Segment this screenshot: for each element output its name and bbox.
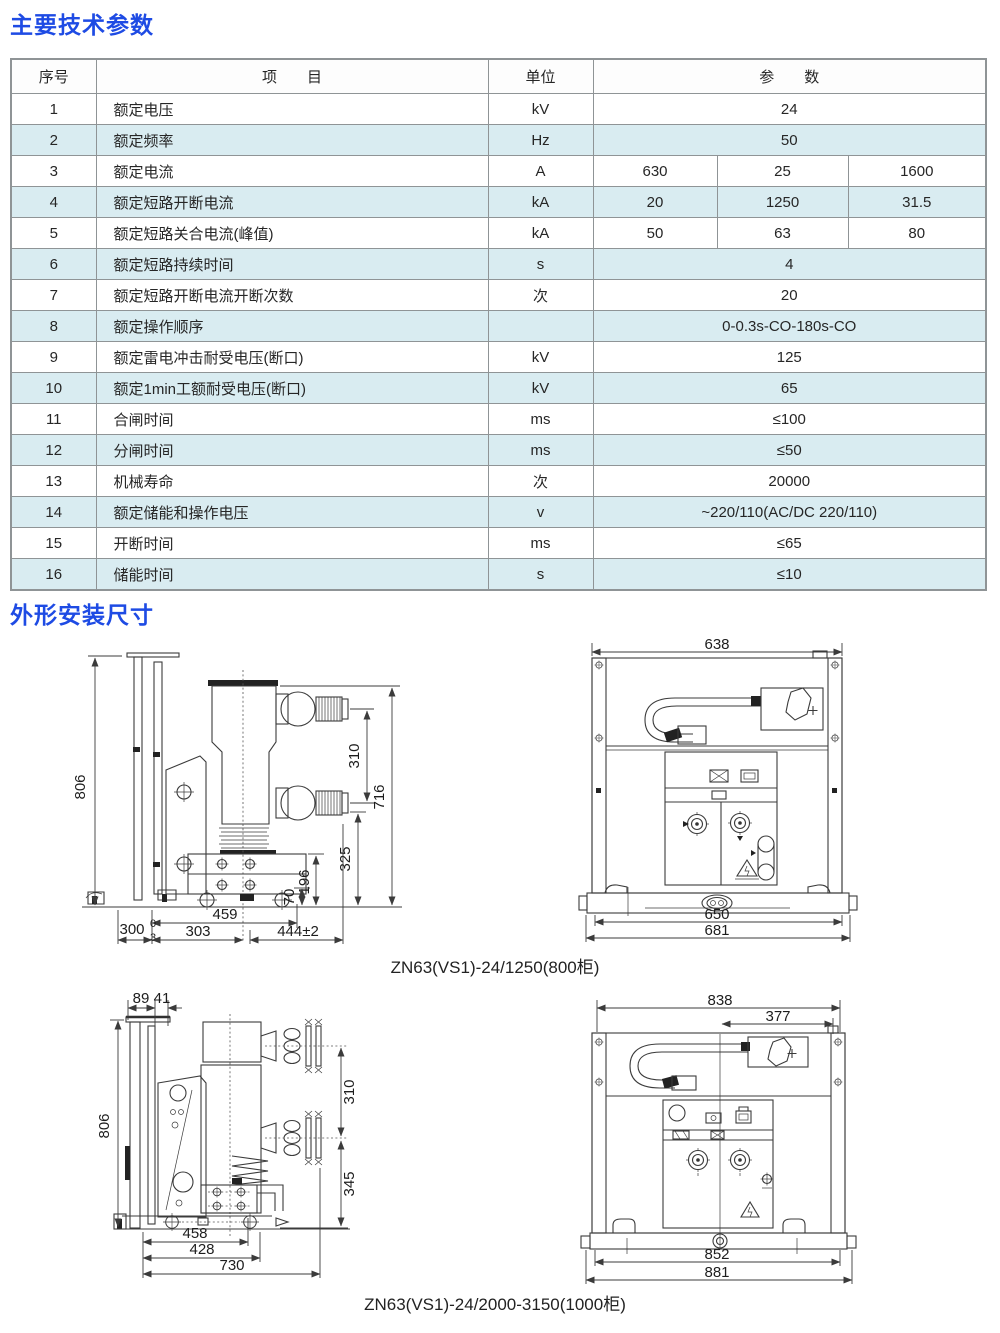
cell-no: 13: [11, 466, 96, 497]
cell-item: 额定储能和操作电压: [96, 497, 488, 528]
mechanism-plate: [166, 756, 206, 894]
cell-item: 开断时间: [96, 528, 488, 559]
counter-icon: [710, 770, 728, 782]
cell-item: 额定雷电冲击耐受电压(断口): [96, 342, 488, 373]
dim-label-89: 89: [133, 990, 150, 1007]
window-icon: [711, 1131, 724, 1139]
table-row: 14 额定储能和操作电压 v ~220/110(AC/DC 220/110): [11, 497, 986, 528]
cell-param: ≤65: [593, 528, 986, 559]
dim-label-806: 806: [96, 1113, 113, 1138]
cell-no: 15: [11, 528, 96, 559]
table-row: 11 合闸时间 ms ≤100: [11, 404, 986, 435]
cell-param: ≤100: [593, 404, 986, 435]
mechanism-plate: [158, 1076, 206, 1217]
cell-param: 0-0.3s-CO-180s-CO: [593, 311, 986, 342]
dim-label-325: 325: [337, 846, 354, 871]
cabinet-body: [592, 1026, 845, 1250]
cell-no: 2: [11, 125, 96, 156]
cell-no: 12: [11, 435, 96, 466]
table-row: 4 额定短路开断电流 kA 20 1250 31.5: [11, 187, 986, 218]
dim-label-196: 196: [296, 869, 313, 894]
plug-hand-icon: [786, 688, 811, 720]
table-row: 15 开断时间 ms ≤65: [11, 528, 986, 559]
plug-cross-icon: [788, 1049, 797, 1058]
dim-label-377: 377: [765, 1008, 790, 1025]
cell-no: 7: [11, 280, 96, 311]
cell-unit: v: [488, 497, 593, 528]
mounting-frame: [86, 653, 179, 904]
dim-label-650: 650: [704, 906, 729, 923]
warning-triangle-icon: [741, 1202, 759, 1217]
cabinet-body: [592, 651, 842, 893]
table-row: 1 额定电压 kV 24: [11, 94, 986, 125]
cell-param: 125: [593, 342, 986, 373]
interlock-bolt-icon: [761, 1173, 774, 1186]
pole-assembly: [208, 670, 278, 942]
cell-unit: kA: [488, 218, 593, 249]
header-unit: 单位: [488, 59, 593, 94]
dim-label-303: 303: [185, 923, 210, 940]
lower-bushing: [261, 1111, 348, 1165]
table-row: 6 额定短路持续时间 s 4: [11, 249, 986, 280]
cell-param: 25: [717, 156, 848, 187]
dim-label-881: 881: [704, 1264, 729, 1281]
table-row: 12 分闸时间 ms ≤50: [11, 435, 986, 466]
dim-label-tol-top: 0: [150, 918, 156, 930]
dim-label-638: 638: [704, 636, 729, 653]
cell-no: 4: [11, 187, 96, 218]
cell-unit: ms: [488, 404, 593, 435]
cell-unit: kV: [488, 94, 593, 125]
table-header-row: 序号 项 目 单位 参 数: [11, 59, 986, 94]
drawing-caption-800: ZN63(VS1)-24/1250(800柜): [285, 953, 705, 978]
side-view-800-drawing: 806 310 325 716 196 70 459 300 0 3: [70, 642, 410, 960]
cell-param: 4: [593, 249, 986, 280]
cell-unit: [488, 311, 593, 342]
cell-item: 额定操作顺序: [96, 311, 488, 342]
nameplate-icon: [741, 770, 758, 782]
cell-item: 额定电压: [96, 94, 488, 125]
lift-handle-icon: [613, 1219, 635, 1233]
open-button-icon: [728, 811, 752, 835]
header-no: 序号: [11, 59, 96, 94]
upper-bushing: [276, 692, 348, 726]
cell-no: 3: [11, 156, 96, 187]
open-button-icon: [728, 1148, 752, 1172]
control-panel: [663, 1100, 774, 1228]
dim-label-730: 730: [219, 1257, 244, 1274]
cell-no: 10: [11, 373, 96, 404]
cell-no: 6: [11, 249, 96, 280]
dim-label-716: 716: [371, 784, 388, 809]
table-row: 5 额定短路关合电流(峰值) kA 50 63 80: [11, 218, 986, 249]
cell-unit: kV: [488, 373, 593, 404]
cell-param: ≤10: [593, 559, 986, 591]
cell-unit: ms: [488, 528, 593, 559]
table-row: 3 额定电流 A 630 25 1600: [11, 156, 986, 187]
indicator-window-icon: [712, 791, 726, 799]
cell-no: 1: [11, 94, 96, 125]
cell-item: 额定短路开断电流: [96, 187, 488, 218]
cell-item: 额定电流: [96, 156, 488, 187]
cell-param: 50: [593, 218, 717, 249]
cell-unit: A: [488, 156, 593, 187]
warning-triangle-icon: [735, 860, 759, 879]
cell-item: 额定短路持续时间: [96, 249, 488, 280]
dim-label-310: 310: [346, 743, 363, 768]
table-row: 16 储能时间 s ≤10: [11, 559, 986, 591]
dim-label-41: 41: [154, 990, 171, 1007]
cell-item: 额定短路关合电流(峰值): [96, 218, 488, 249]
cell-param: 20000: [593, 466, 986, 497]
mounting-frame: [114, 1017, 170, 1229]
dim-label-310: 310: [341, 1079, 358, 1104]
section-title-dimensions: 外形安装尺寸: [10, 596, 154, 630]
dim-label-345: 345: [341, 1171, 358, 1196]
close-button-icon: [686, 1148, 710, 1172]
plug-hand-icon: [768, 1038, 791, 1066]
dimension-annotations: 838 377 852 881: [586, 992, 852, 1284]
dim-label-tol-bot: 3: [150, 932, 156, 944]
cable-loop: [630, 1037, 808, 1090]
header-param: 参 数: [593, 59, 986, 94]
cell-item: 额定1min工额耐受电压(断口): [96, 373, 488, 404]
cell-unit: kA: [488, 187, 593, 218]
vent-icon: [673, 1131, 689, 1139]
cell-param: 630: [593, 156, 717, 187]
cell-unit: 次: [488, 466, 593, 497]
cell-param: ~220/110(AC/DC 220/110): [593, 497, 986, 528]
table-row: 8 额定操作顺序 0-0.3s-CO-180s-CO: [11, 311, 986, 342]
counter-icon: [706, 1113, 721, 1123]
latch-icon: [736, 1107, 751, 1123]
dim-label-681: 681: [704, 922, 729, 939]
dimension-annotations: 638 650 681: [586, 636, 850, 942]
cell-item: 额定短路开断电流开断次数: [96, 280, 488, 311]
cell-no: 11: [11, 404, 96, 435]
table-row: 2 额定频率 Hz 50: [11, 125, 986, 156]
cell-param: 31.5: [848, 187, 986, 218]
tech-params-table: 序号 项 目 单位 参 数 1 额定电压 kV 24 2 额定频率 Hz 50 …: [10, 58, 987, 591]
cell-item: 机械寿命: [96, 466, 488, 497]
dim-label-70: 70: [281, 889, 298, 906]
cell-item: 分闸时间: [96, 435, 488, 466]
cell-item: 额定频率: [96, 125, 488, 156]
table-row: 9 额定雷电冲击耐受电压(断口) kV 125: [11, 342, 986, 373]
drawing-caption-1000: ZN63(VS1)-24/2000-3150(1000柜): [285, 1290, 705, 1315]
cell-unit: kV: [488, 342, 593, 373]
dim-label-459: 459: [212, 906, 237, 923]
cell-unit: Hz: [488, 125, 593, 156]
cell-param: 80: [848, 218, 986, 249]
dim-label-428: 428: [189, 1241, 214, 1258]
cell-unit: s: [488, 559, 593, 591]
cell-no: 9: [11, 342, 96, 373]
charging-handle-icon: [751, 836, 774, 880]
dim-label-300: 300: [119, 921, 144, 938]
cell-param: 50: [593, 125, 986, 156]
cell-param: 20: [593, 187, 717, 218]
table-row: 13 机械寿命 次 20000: [11, 466, 986, 497]
cell-param: 1600: [848, 156, 986, 187]
cell-item: 储能时间: [96, 559, 488, 591]
cell-unit: ms: [488, 435, 593, 466]
header-item: 项 目: [96, 59, 488, 94]
front-view-800-drawing: 638 650 681: [565, 638, 895, 950]
cell-param: 20: [593, 280, 986, 311]
lift-handle-icon: [783, 1219, 805, 1233]
cell-item: 合闸时间: [96, 404, 488, 435]
upper-bushing: [261, 1019, 348, 1073]
dimension-annotations: 89 41 806 310 345 458 428 730: [96, 990, 358, 1278]
cell-unit: 次: [488, 280, 593, 311]
pole-assembly: [201, 1014, 268, 1236]
mounting-box: [201, 1178, 283, 1213]
cell-no: 16: [11, 559, 96, 591]
cell-param: 63: [717, 218, 848, 249]
cell-param: ≤50: [593, 435, 986, 466]
table-row: 10 额定1min工额耐受电压(断口) kV 65: [11, 373, 986, 404]
cable-loop: [645, 688, 823, 744]
catalog-page: 主要技术参数 序号 项 目 单位 参 数 1 额定电压 kV 24 2 额定频率: [0, 0, 1000, 1333]
cell-no: 5: [11, 218, 96, 249]
cell-no: 14: [11, 497, 96, 528]
cell-param: 24: [593, 94, 986, 125]
section-title-params: 主要技术参数: [10, 6, 154, 40]
control-panel: [665, 752, 777, 885]
plug-cross-icon: [809, 706, 818, 715]
dim-label-838: 838: [707, 992, 732, 1009]
table-row: 7 额定短路开断电流开断次数 次 20: [11, 280, 986, 311]
side-view-1000-drawing: 89 41 806 310 345 458 428 730: [80, 986, 480, 1288]
cell-param: 1250: [717, 187, 848, 218]
front-view-1000-drawing: 838 377 852 881: [565, 992, 905, 1292]
dim-label-806: 806: [72, 774, 89, 799]
cell-no: 8: [11, 311, 96, 342]
lower-bushing: [276, 786, 348, 820]
dim-label-458: 458: [182, 1225, 207, 1242]
dim-label-444: 444±2: [277, 923, 319, 940]
cell-unit: s: [488, 249, 593, 280]
cell-param: 65: [593, 373, 986, 404]
dimension-annotations: 806 310 325 716 196 70 459 300 0 3: [72, 656, 400, 944]
dim-label-852: 852: [704, 1246, 729, 1263]
